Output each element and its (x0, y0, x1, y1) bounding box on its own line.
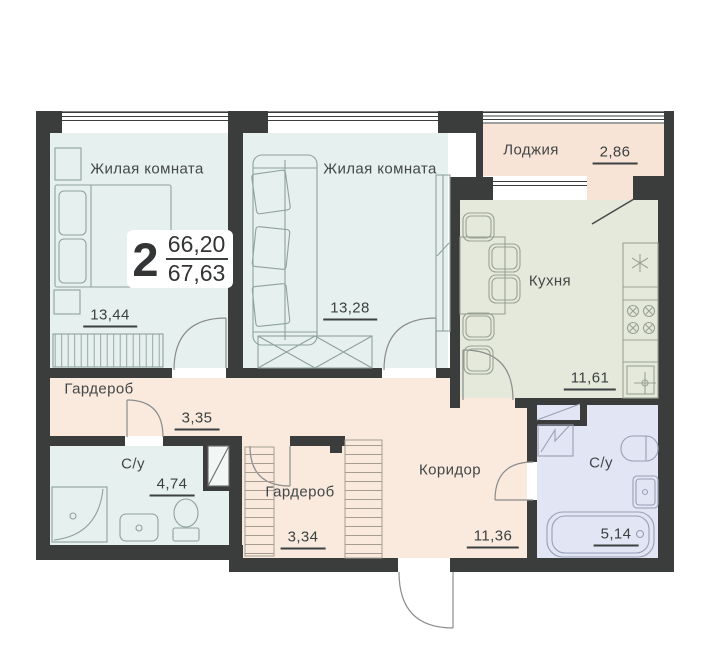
window-living-1 (62, 111, 228, 133)
room-area-kitchen: 11,61 (564, 370, 616, 391)
room-label-corridor: Коридор (419, 462, 481, 479)
closet-hangers (53, 334, 163, 367)
shelf-rack (345, 440, 382, 558)
room-label-wardrobe-2: Гардероб (265, 484, 334, 501)
vent-shaft (208, 446, 229, 486)
room-area-living-2: 13,28 (323, 300, 377, 321)
window-loggia (483, 111, 664, 124)
room-area-bathroom-2: 5,14 (594, 526, 639, 547)
apartment-summary-card: 2 66,20 67,63 (127, 230, 233, 288)
room-label-wardrobe-1: Гардероб (64, 381, 133, 398)
window-loggia-kitchen (493, 177, 587, 200)
room-area-living-1: 13,44 (83, 307, 137, 328)
room-label-bathroom-1: С/у (121, 456, 145, 473)
room-label-living-2: Жилая комната (323, 161, 437, 178)
rooms-count: 2 (132, 236, 158, 283)
room-area-bathroom-1: 4,74 (150, 476, 195, 497)
living-area-value: 66,20 (168, 232, 226, 257)
room-area-loggia: 2,86 (593, 144, 638, 165)
shelf-rack (245, 447, 274, 556)
floor-plan: Жилая комната 13,44 Жилая комната 13,28 … (0, 0, 709, 650)
window-living-2 (268, 111, 438, 133)
room-area-corridor: 11,36 (467, 528, 519, 549)
room-area-wardrobe-1: 3,35 (175, 410, 220, 431)
total-area-value: 67,63 (168, 261, 226, 286)
room-area-wardrobe-2: 3,34 (281, 529, 326, 550)
room-label-living-1: Жилая комната (90, 161, 204, 178)
room-label-loggia: Лоджия (503, 142, 559, 159)
area-fraction: 66,20 67,63 (166, 232, 228, 287)
room-label-kitchen: Кухня (529, 273, 571, 290)
door-entrance (399, 572, 453, 628)
room-label-bathroom-2: С/у (589, 455, 613, 472)
